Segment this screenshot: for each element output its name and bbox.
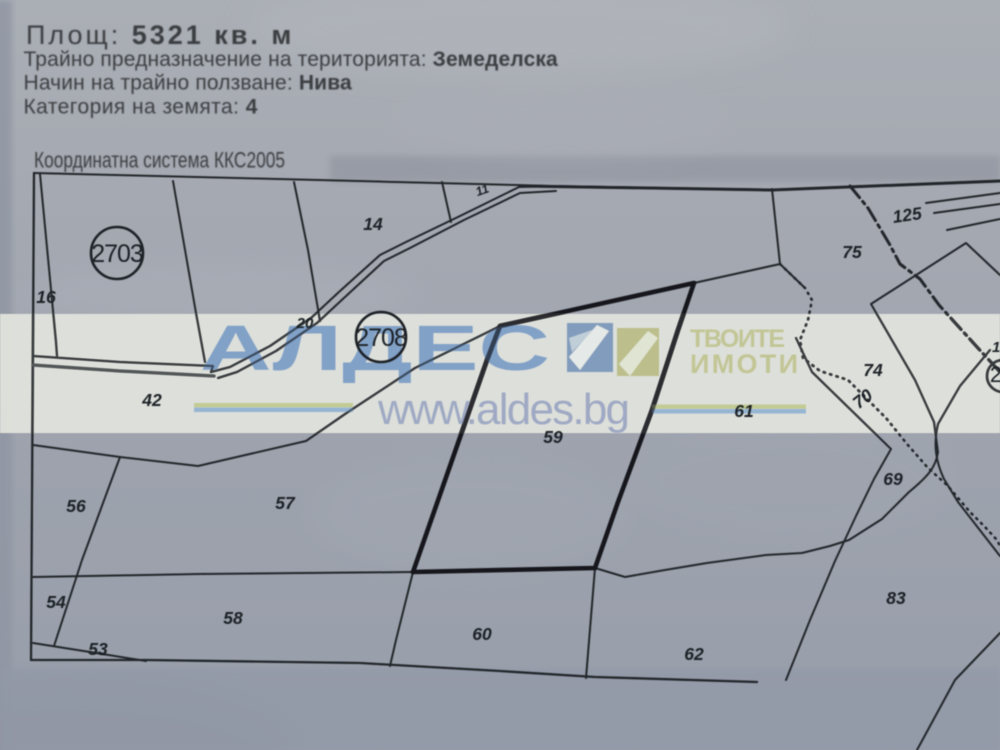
- svg-text:61: 61: [734, 401, 753, 421]
- svg-text:www.aldes.bg: www.aldes.bg: [377, 385, 630, 434]
- svg-text:83: 83: [886, 588, 906, 608]
- svg-text:2708: 2708: [355, 324, 407, 352]
- svg-text:54: 54: [46, 592, 66, 612]
- svg-text:Категория на земята: 4: Категория на земята: 4: [24, 96, 258, 119]
- svg-text:14: 14: [363, 214, 383, 234]
- svg-text:62: 62: [684, 644, 704, 664]
- svg-text:125: 125: [891, 203, 923, 227]
- svg-text:2703: 2703: [91, 240, 143, 268]
- svg-text:69: 69: [883, 469, 903, 489]
- svg-text:ИМОТИ: ИМОТИ: [690, 349, 798, 379]
- svg-text:Координатна система ККС2005: Координатна система ККС2005: [34, 148, 285, 173]
- svg-text:2: 2: [990, 362, 1000, 387]
- svg-text:Площ: 5321 кв. м: Площ: 5321 кв. м: [26, 20, 294, 50]
- svg-text:1: 1: [992, 339, 1000, 356]
- svg-text:16: 16: [36, 287, 56, 307]
- svg-text:74: 74: [863, 360, 883, 380]
- svg-text:42: 42: [141, 390, 162, 410]
- svg-text:75: 75: [842, 242, 862, 262]
- svg-text:60: 60: [472, 624, 492, 644]
- svg-text:53: 53: [88, 639, 108, 659]
- svg-text:59: 59: [543, 427, 563, 447]
- svg-text:Начин на трайно ползване: Нива: Начин на трайно ползване: Нива: [24, 72, 353, 95]
- svg-text:20: 20: [296, 315, 314, 332]
- svg-text:57: 57: [275, 493, 296, 513]
- svg-text:Трайно предназначение на терит: Трайно предназначение на територията: Зе…: [24, 48, 559, 71]
- svg-text:58: 58: [223, 608, 243, 628]
- svg-text:56: 56: [66, 496, 86, 516]
